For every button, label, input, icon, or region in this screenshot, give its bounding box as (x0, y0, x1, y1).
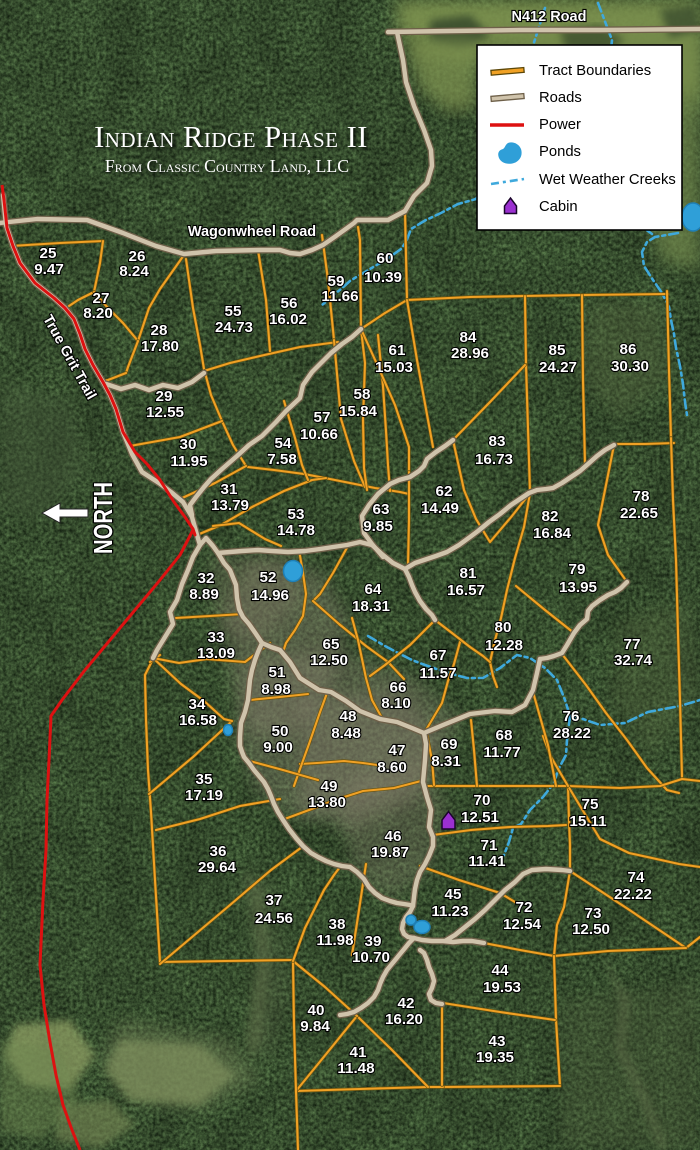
svg-text:10.70: 10.70 (352, 949, 390, 966)
svg-text:12.54: 12.54 (503, 916, 542, 933)
svg-text:12.28: 12.28 (485, 637, 523, 654)
svg-text:33: 33 (208, 629, 225, 646)
svg-text:45: 45 (445, 886, 462, 903)
svg-text:71: 71 (481, 837, 498, 854)
svg-text:41: 41 (350, 1044, 367, 1061)
svg-text:11.77: 11.77 (483, 744, 520, 761)
svg-text:67: 67 (430, 647, 447, 664)
svg-text:28: 28 (151, 322, 168, 339)
svg-text:16.84: 16.84 (533, 525, 572, 542)
svg-text:42: 42 (398, 995, 415, 1012)
svg-text:53: 53 (288, 506, 305, 523)
svg-text:13.79: 13.79 (211, 497, 249, 514)
svg-text:7.58: 7.58 (267, 451, 297, 468)
svg-text:Cabin: Cabin (539, 199, 578, 215)
svg-text:Tract Boundaries: Tract Boundaries (539, 63, 651, 79)
svg-text:55: 55 (225, 303, 242, 320)
svg-text:9.47: 9.47 (34, 261, 64, 278)
svg-text:78: 78 (633, 488, 650, 505)
svg-text:30: 30 (180, 436, 197, 453)
svg-text:8.89: 8.89 (189, 586, 219, 603)
svg-text:72: 72 (516, 899, 533, 916)
svg-text:63: 63 (373, 501, 390, 518)
svg-text:Roads: Roads (539, 90, 582, 106)
svg-text:14.96: 14.96 (251, 587, 289, 604)
svg-text:16.02: 16.02 (269, 311, 307, 328)
svg-text:69: 69 (441, 736, 458, 753)
svg-text:47: 47 (389, 742, 406, 759)
svg-text:9.00: 9.00 (263, 739, 293, 756)
svg-text:14.49: 14.49 (421, 500, 459, 517)
svg-text:50: 50 (272, 723, 289, 740)
svg-text:25: 25 (40, 245, 57, 262)
svg-text:16.73: 16.73 (475, 451, 513, 468)
svg-text:16.58: 16.58 (179, 712, 217, 729)
svg-text:11.41: 11.41 (468, 853, 506, 870)
svg-text:Wet Weather Creeks: Wet Weather Creeks (539, 172, 676, 188)
svg-text:48: 48 (340, 708, 357, 725)
svg-text:70: 70 (474, 792, 491, 809)
svg-text:15.11: 15.11 (569, 813, 607, 830)
svg-text:35: 35 (196, 771, 213, 788)
svg-text:38: 38 (329, 916, 346, 933)
svg-text:74: 74 (628, 869, 645, 886)
svg-text:28.22: 28.22 (553, 725, 591, 742)
svg-text:16.20: 16.20 (385, 1011, 423, 1028)
svg-text:86: 86 (620, 341, 637, 358)
svg-text:17.80: 17.80 (141, 338, 179, 355)
svg-text:12.51: 12.51 (461, 809, 500, 826)
svg-text:12.50: 12.50 (572, 921, 610, 938)
svg-text:49: 49 (321, 778, 338, 795)
svg-text:8.48: 8.48 (331, 725, 361, 742)
svg-text:83: 83 (489, 433, 506, 450)
svg-text:81: 81 (460, 565, 477, 582)
svg-text:24.27: 24.27 (539, 359, 577, 376)
svg-text:57: 57 (314, 409, 331, 426)
svg-text:54: 54 (275, 435, 292, 452)
svg-text:58: 58 (354, 386, 371, 403)
svg-text:17.19: 17.19 (185, 787, 223, 804)
svg-text:36: 36 (210, 843, 227, 860)
svg-text:68: 68 (496, 727, 513, 744)
svg-text:From Classic Country Land, LLC: From Classic Country Land, LLC (105, 156, 349, 176)
svg-text:11.23: 11.23 (431, 903, 468, 920)
svg-text:11.48: 11.48 (337, 1060, 374, 1077)
svg-text:19.87: 19.87 (371, 844, 409, 861)
svg-text:65: 65 (323, 636, 340, 653)
svg-text:44: 44 (492, 962, 509, 979)
svg-text:19.35: 19.35 (476, 1049, 515, 1066)
svg-text:56: 56 (281, 295, 298, 312)
svg-text:75: 75 (582, 796, 599, 813)
svg-text:82: 82 (542, 508, 559, 525)
svg-text:15.84: 15.84 (339, 403, 378, 420)
svg-text:12.55: 12.55 (146, 404, 185, 421)
svg-text:8.10: 8.10 (381, 695, 411, 712)
svg-text:22.22: 22.22 (614, 886, 652, 903)
svg-text:32.74: 32.74 (614, 652, 653, 669)
svg-text:13.09: 13.09 (197, 645, 235, 662)
svg-text:15.03: 15.03 (375, 359, 413, 376)
svg-text:32: 32 (198, 570, 215, 587)
svg-text:39: 39 (365, 933, 382, 950)
svg-text:28.96: 28.96 (451, 345, 489, 362)
svg-text:79: 79 (569, 561, 586, 578)
svg-text:8.60: 8.60 (377, 759, 407, 776)
svg-text:40: 40 (308, 1002, 325, 1019)
svg-text:43: 43 (489, 1033, 506, 1050)
svg-text:8.31: 8.31 (431, 753, 461, 770)
svg-text:12.50: 12.50 (310, 652, 348, 669)
svg-text:22.65: 22.65 (620, 505, 659, 522)
svg-text:76: 76 (563, 708, 580, 725)
svg-text:Ponds: Ponds (539, 144, 581, 160)
svg-text:84: 84 (460, 329, 477, 346)
svg-text:Wagonwheel Road: Wagonwheel Road (188, 224, 316, 240)
svg-text:85: 85 (549, 342, 566, 359)
svg-text:29.64: 29.64 (198, 859, 237, 876)
svg-text:14.78: 14.78 (277, 522, 315, 539)
svg-text:8.98: 8.98 (261, 681, 291, 698)
svg-text:NORTH: NORTH (88, 482, 118, 554)
svg-text:11.66: 11.66 (321, 288, 358, 305)
svg-text:10.39: 10.39 (364, 269, 402, 286)
svg-text:24.56: 24.56 (255, 910, 293, 927)
svg-text:13.80: 13.80 (308, 794, 346, 811)
svg-text:18.31: 18.31 (352, 598, 391, 615)
svg-text:9.85: 9.85 (363, 518, 393, 535)
svg-text:16.57: 16.57 (447, 582, 485, 599)
svg-text:62: 62 (436, 483, 453, 500)
svg-text:51: 51 (269, 664, 286, 681)
svg-text:8.20: 8.20 (83, 305, 113, 322)
svg-text:80: 80 (495, 619, 512, 636)
svg-text:8.24: 8.24 (119, 263, 149, 280)
svg-text:73: 73 (585, 905, 602, 922)
svg-text:77: 77 (624, 636, 641, 653)
svg-text:19.53: 19.53 (483, 979, 521, 996)
svg-text:9.84: 9.84 (300, 1018, 330, 1035)
svg-text:10.66: 10.66 (300, 426, 338, 443)
svg-text:30.30: 30.30 (611, 358, 649, 375)
svg-text:37: 37 (266, 892, 283, 909)
svg-text:Indian Ridge Phase II: Indian Ridge Phase II (94, 120, 368, 154)
svg-text:24.73: 24.73 (215, 319, 253, 336)
svg-text:13.95: 13.95 (559, 579, 598, 596)
svg-text:46: 46 (385, 828, 402, 845)
svg-text:31: 31 (221, 481, 238, 498)
svg-text:34: 34 (189, 696, 206, 713)
svg-text:52: 52 (260, 569, 277, 586)
svg-text:N412 Road: N412 Road (512, 9, 587, 25)
svg-text:61: 61 (389, 342, 406, 359)
svg-text:60: 60 (377, 250, 394, 267)
svg-text:64: 64 (365, 581, 382, 598)
svg-text:11.57: 11.57 (419, 665, 456, 682)
svg-text:66: 66 (390, 679, 407, 696)
svg-text:11.98: 11.98 (316, 932, 353, 949)
svg-text:29: 29 (156, 388, 173, 405)
svg-text:11.95: 11.95 (170, 453, 208, 470)
svg-text:Power: Power (539, 117, 581, 133)
